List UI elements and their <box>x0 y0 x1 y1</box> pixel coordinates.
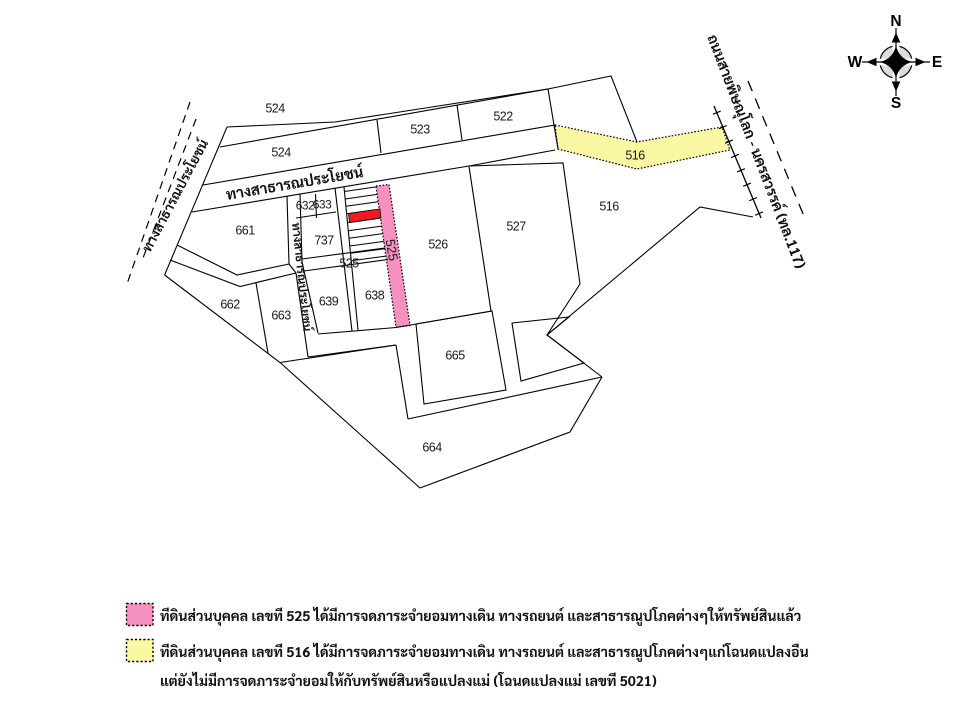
svg-text:516: 516 <box>599 200 619 214</box>
svg-text:662: 662 <box>220 298 240 312</box>
svg-text:664: 664 <box>422 441 442 455</box>
svg-text:522: 522 <box>493 110 513 124</box>
svg-text:737: 737 <box>314 234 334 248</box>
svg-text:661: 661 <box>235 224 255 238</box>
svg-text:524: 524 <box>271 146 291 160</box>
svg-text:S: S <box>891 95 901 112</box>
svg-text:E: E <box>932 54 942 71</box>
svg-text:639: 639 <box>319 295 339 309</box>
svg-text:N: N <box>890 13 901 30</box>
svg-text:525: 525 <box>339 257 359 271</box>
svg-text:663: 663 <box>271 309 291 323</box>
svg-text:665: 665 <box>445 349 465 363</box>
svg-text:523: 523 <box>410 123 430 137</box>
svg-text:524: 524 <box>265 102 285 116</box>
svg-text:W: W <box>848 54 863 71</box>
svg-text:633: 633 <box>313 198 332 212</box>
svg-text:526: 526 <box>428 238 448 252</box>
svg-text:638: 638 <box>365 289 385 303</box>
svg-text:527: 527 <box>506 220 526 234</box>
svg-text:516: 516 <box>625 149 645 163</box>
